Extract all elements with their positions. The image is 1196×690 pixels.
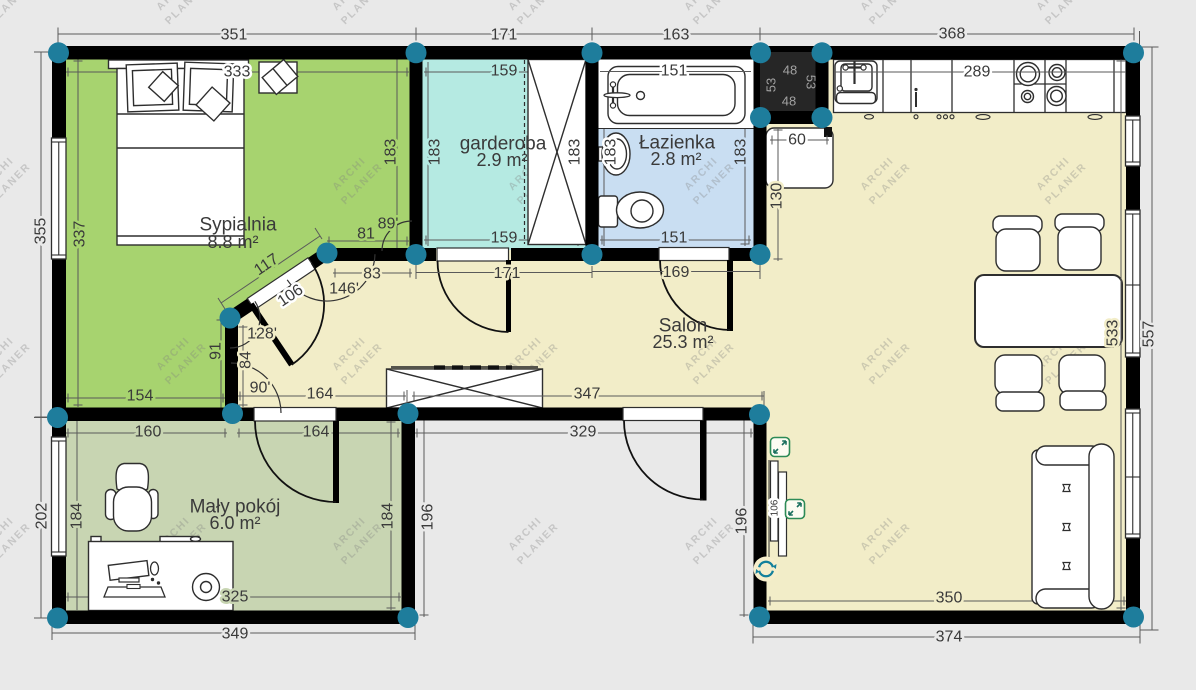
svg-text:91: 91 xyxy=(208,342,225,360)
svg-text:202: 202 xyxy=(34,503,51,530)
svg-text:355: 355 xyxy=(33,218,50,245)
svg-text:337: 337 xyxy=(72,221,89,248)
svg-text:146': 146' xyxy=(329,281,359,298)
svg-text:350: 350 xyxy=(936,590,963,607)
svg-text:164: 164 xyxy=(307,386,334,403)
svg-text:329: 329 xyxy=(570,424,597,441)
svg-text:351: 351 xyxy=(221,27,248,44)
svg-text:196: 196 xyxy=(420,504,437,531)
svg-text:2.8 m²: 2.8 m² xyxy=(650,149,701,169)
svg-text:160: 160 xyxy=(135,424,162,441)
svg-text:163: 163 xyxy=(663,27,690,44)
svg-text:130: 130 xyxy=(769,183,786,210)
svg-text:25.3 m²: 25.3 m² xyxy=(652,332,713,352)
svg-text:183: 183 xyxy=(733,139,750,166)
svg-text:90': 90' xyxy=(250,380,271,397)
svg-text:183: 183 xyxy=(427,139,444,166)
svg-text:196: 196 xyxy=(734,508,751,535)
svg-text:289: 289 xyxy=(964,64,991,81)
svg-text:183: 183 xyxy=(383,139,400,166)
svg-text:83: 83 xyxy=(363,266,381,283)
svg-text:154: 154 xyxy=(127,388,154,405)
svg-text:151: 151 xyxy=(661,63,688,80)
svg-text:53: 53 xyxy=(804,75,819,89)
svg-text:128': 128' xyxy=(247,326,277,343)
svg-text:368: 368 xyxy=(939,26,966,43)
svg-text:333: 333 xyxy=(224,64,251,81)
svg-text:325: 325 xyxy=(222,589,249,606)
svg-text:159: 159 xyxy=(491,63,518,80)
svg-text:184: 184 xyxy=(380,503,397,530)
svg-text:159: 159 xyxy=(491,230,518,247)
svg-text:60: 60 xyxy=(788,132,806,149)
svg-text:6.0 m²: 6.0 m² xyxy=(209,513,260,533)
svg-text:53: 53 xyxy=(763,78,778,92)
svg-text:8.8 m²: 8.8 m² xyxy=(207,232,258,252)
svg-text:349: 349 xyxy=(222,626,249,643)
svg-text:84: 84 xyxy=(238,351,255,369)
svg-text:557: 557 xyxy=(1141,321,1158,348)
svg-text:183: 183 xyxy=(603,139,620,166)
svg-text:374: 374 xyxy=(936,629,963,646)
svg-text:81: 81 xyxy=(357,226,375,243)
svg-text:106: 106 xyxy=(769,499,780,516)
svg-text:171: 171 xyxy=(491,27,518,44)
svg-text:89': 89' xyxy=(378,216,399,233)
svg-text:169: 169 xyxy=(663,264,690,281)
svg-text:2.9 m²: 2.9 m² xyxy=(476,150,527,170)
svg-text:533: 533 xyxy=(1105,320,1122,347)
svg-text:171: 171 xyxy=(494,265,521,282)
svg-text:151: 151 xyxy=(661,230,688,247)
svg-text:48: 48 xyxy=(783,62,797,77)
svg-text:347: 347 xyxy=(574,386,601,403)
svg-text:184: 184 xyxy=(69,503,86,530)
svg-text:183: 183 xyxy=(567,139,584,166)
svg-text:48: 48 xyxy=(782,93,796,108)
svg-text:164: 164 xyxy=(303,424,330,441)
